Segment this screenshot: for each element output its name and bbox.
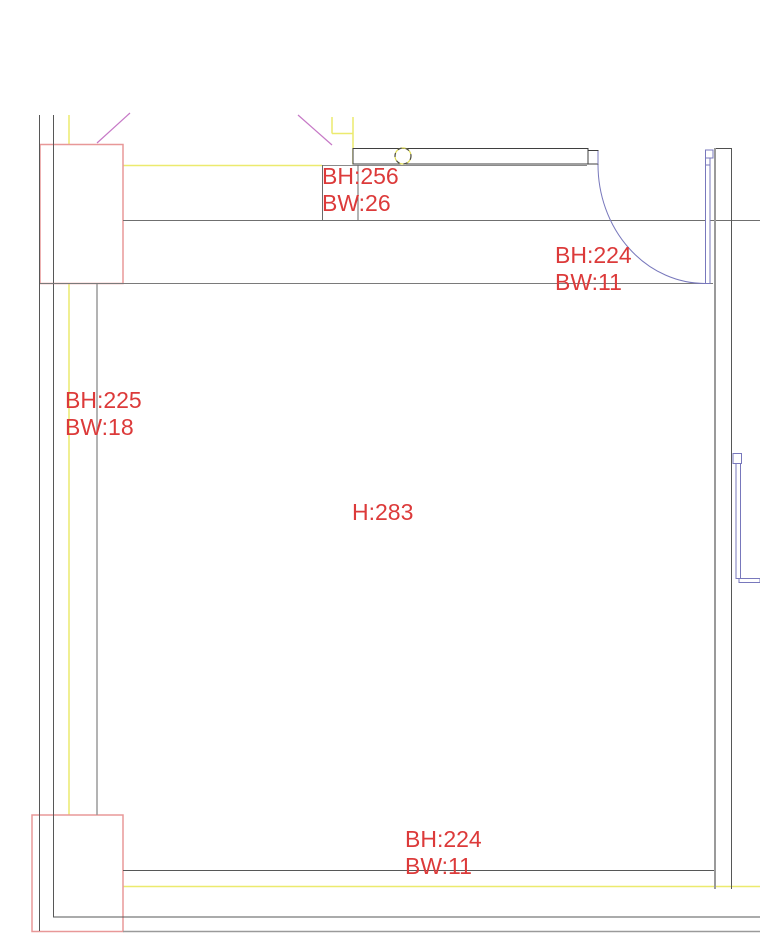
right-opening-sill — [739, 579, 760, 583]
beam-label-top-line1: BH:256 — [322, 163, 399, 190]
beam-label-right-line2: BW:11 — [555, 269, 632, 296]
door — [353, 149, 598, 165]
beam-label-bottom-line1: BH:224 — [405, 826, 482, 853]
beam-edge-lines — [69, 115, 760, 887]
door-leaf — [353, 149, 588, 165]
right-opening-leaf — [736, 464, 741, 579]
floorplan-drawing — [0, 0, 760, 950]
columns — [32, 145, 123, 932]
beam-label-top: BH:256 BW:26 — [322, 163, 399, 217]
door-frame-blue — [598, 150, 760, 583]
door-stop — [588, 151, 598, 165]
beam-label-left: BH:225 BW:18 — [65, 387, 142, 441]
floorplan-canvas[interactable]: BH:256 BW:26 BH:224 BW:11 BH:225 BW:18 H… — [0, 0, 760, 950]
section-mark-center — [298, 115, 332, 145]
column-top-left — [40, 145, 123, 284]
door-jamb-top — [706, 150, 714, 158]
beam-label-bottom: BH:224 BW:11 — [405, 826, 482, 880]
beam-label-right-line1: BH:224 — [555, 242, 632, 269]
door-jamb-step — [706, 158, 711, 165]
room-height-label-line1: H:283 — [352, 499, 413, 526]
beam-label-left-line2: BW:18 — [65, 414, 142, 441]
right-opening-jamb — [733, 454, 742, 464]
beam-label-left-line1: BH:225 — [65, 387, 142, 414]
door-frame-post — [706, 165, 711, 284]
room-height-label: H:283 — [352, 499, 413, 526]
top-beam-stub — [332, 117, 353, 165]
section-marks — [97, 113, 332, 145]
beam-label-right: BH:224 BW:11 — [555, 242, 632, 296]
beam-label-top-line2: BW:26 — [322, 190, 399, 217]
section-mark-left — [97, 113, 130, 143]
beam-label-bottom-line2: BW:11 — [405, 853, 482, 880]
column-bottom-left — [32, 815, 123, 932]
